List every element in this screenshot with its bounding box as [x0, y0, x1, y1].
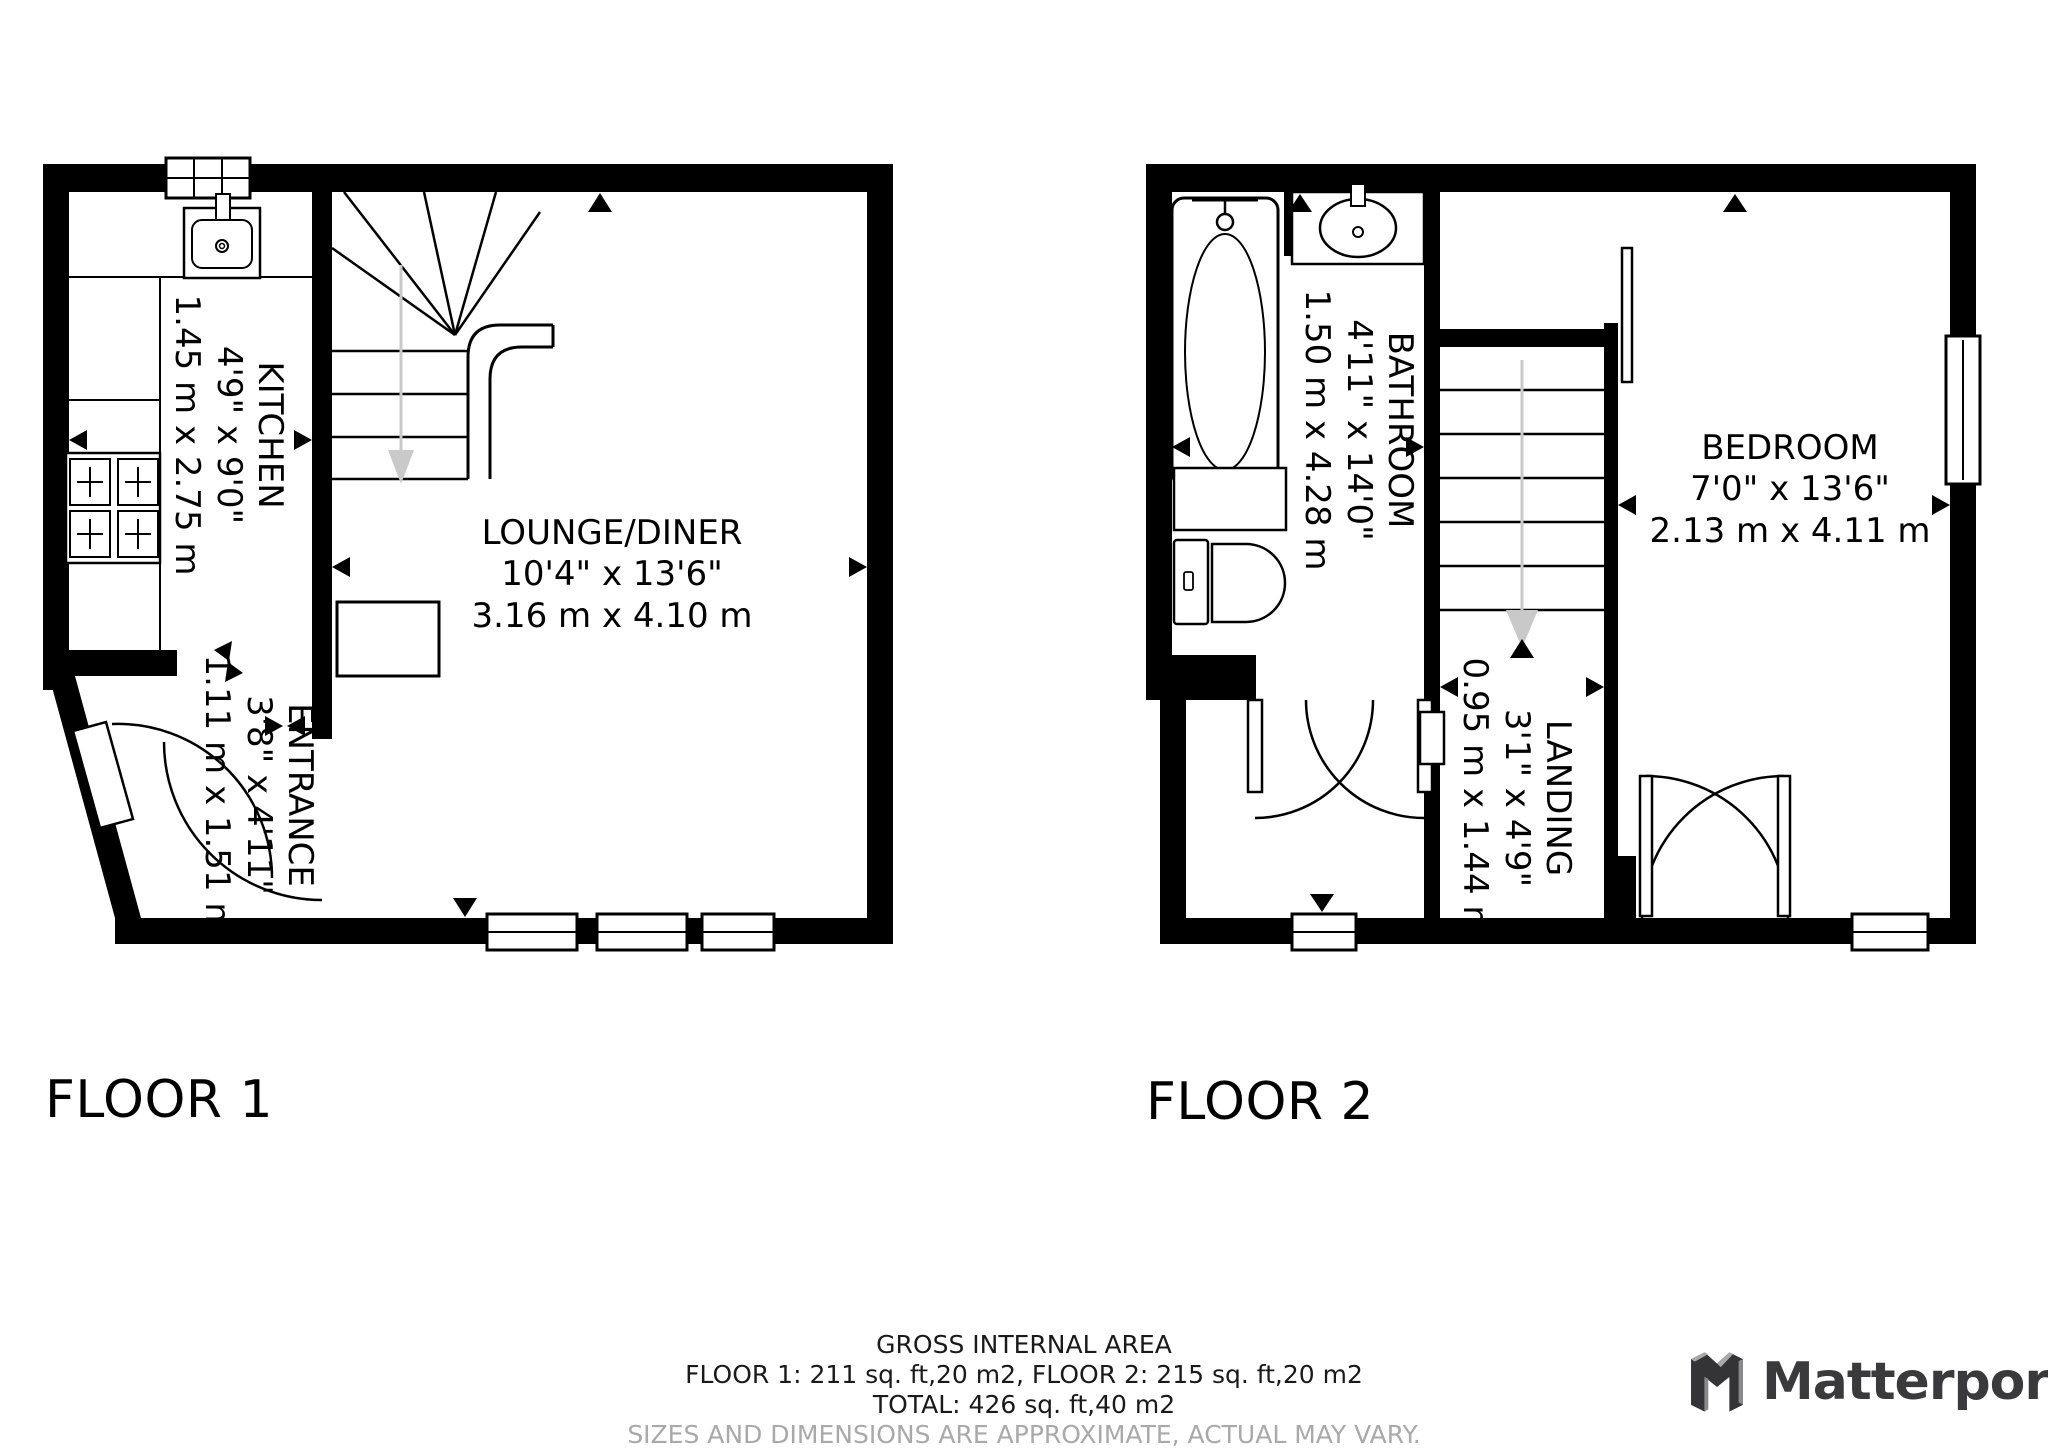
kitchen-label: KITCHEN 4'9" x 9'0" 1.45 m x 2.75 m [166, 295, 290, 576]
floor2-title: FLOOR 2 [1146, 1072, 1374, 1132]
room-dim-ft: 10'4" x 13'6" [472, 554, 753, 595]
stairs-down-arrow [388, 265, 414, 484]
matterport-logo: Matterport [1686, 1348, 2048, 1416]
room-dim-ft: 7'0" x 13'6" [1650, 469, 1931, 510]
bedroom-door-leaf [1622, 248, 1632, 382]
stove-hob-icon [66, 453, 160, 563]
room-name: BEDROOM [1650, 428, 1931, 469]
room-dim-ft: 3'1" x 4'9" [1495, 658, 1536, 939]
room-name: ENTRANCE [279, 655, 320, 936]
stairs-floor1 [332, 192, 553, 479]
kitchen-sink-icon [69, 194, 312, 278]
room-dim-ft: 4'9" x 9'0" [207, 295, 248, 576]
landing-label: LANDING 3'1" x 4'9" 0.95 m x 1.44 m [1454, 658, 1578, 939]
room-dim-ft: 3'8" x 4'11" [237, 655, 278, 936]
stairs-floor2-down-arrow [1506, 360, 1538, 658]
room-dim-m: 2.13 m x 4.11 m [1650, 511, 1931, 552]
bedroom-patio-doors [1640, 776, 1790, 918]
room-dim-m: 3.16 m x 4.10 m [472, 596, 753, 637]
room-dim-m: 0.95 m x 1.44 m [1454, 658, 1495, 939]
vestibule-doors [1248, 700, 1432, 818]
landing-doorway-frame [1420, 712, 1444, 764]
room-dim-m: 1.45 m x 2.75 m [166, 295, 207, 576]
lounge-label: LOUNGE/DINER 10'4" x 13'6" 3.16 m x 4.10… [472, 513, 753, 637]
lounge-windows [487, 914, 774, 950]
room-name: KITCHEN [249, 295, 290, 576]
bathroom-cabinet [1174, 468, 1286, 530]
brand-name: Matterport [1762, 1352, 2048, 1412]
understair-cupboard [337, 602, 439, 676]
kitchen-window [166, 158, 250, 198]
sink-partition-wall [1284, 192, 1292, 256]
bathroom-door-leaf [1248, 700, 1262, 792]
entrance-label: ENTRANCE 3'8" x 4'11" 1.11 m x 1.51 m [196, 655, 320, 936]
bedroom-label: BEDROOM 7'0" x 13'6" 2.13 m x 4.11 m [1650, 428, 1931, 552]
toilet-icon [1174, 540, 1285, 624]
room-dim-ft: 4'11" x 14'0" [1337, 290, 1378, 571]
floor1-title: FLOOR 1 [45, 1070, 273, 1130]
bathroom-sink-icon [1292, 184, 1424, 264]
room-name: LOUNGE/DINER [472, 513, 753, 554]
page: { "floor1": { "label": "FLOOR 1", "rooms… [0, 0, 2048, 1448]
disclaimer-line: SIZES AND DIMENSIONS ARE APPROXIMATE, AC… [0, 1420, 2048, 1450]
room-name: LANDING [1537, 658, 1578, 939]
matterport-icon [1686, 1348, 1748, 1416]
bathroom-label: BATHROOM 4'11" x 14'0" 1.50 m x 4.28 m [1296, 290, 1420, 571]
room-name: BATHROOM [1379, 290, 1420, 571]
room-dim-m: 1.11 m x 1.51 m [196, 655, 237, 936]
room-dim-m: 1.50 m x 4.28 m [1296, 290, 1337, 571]
